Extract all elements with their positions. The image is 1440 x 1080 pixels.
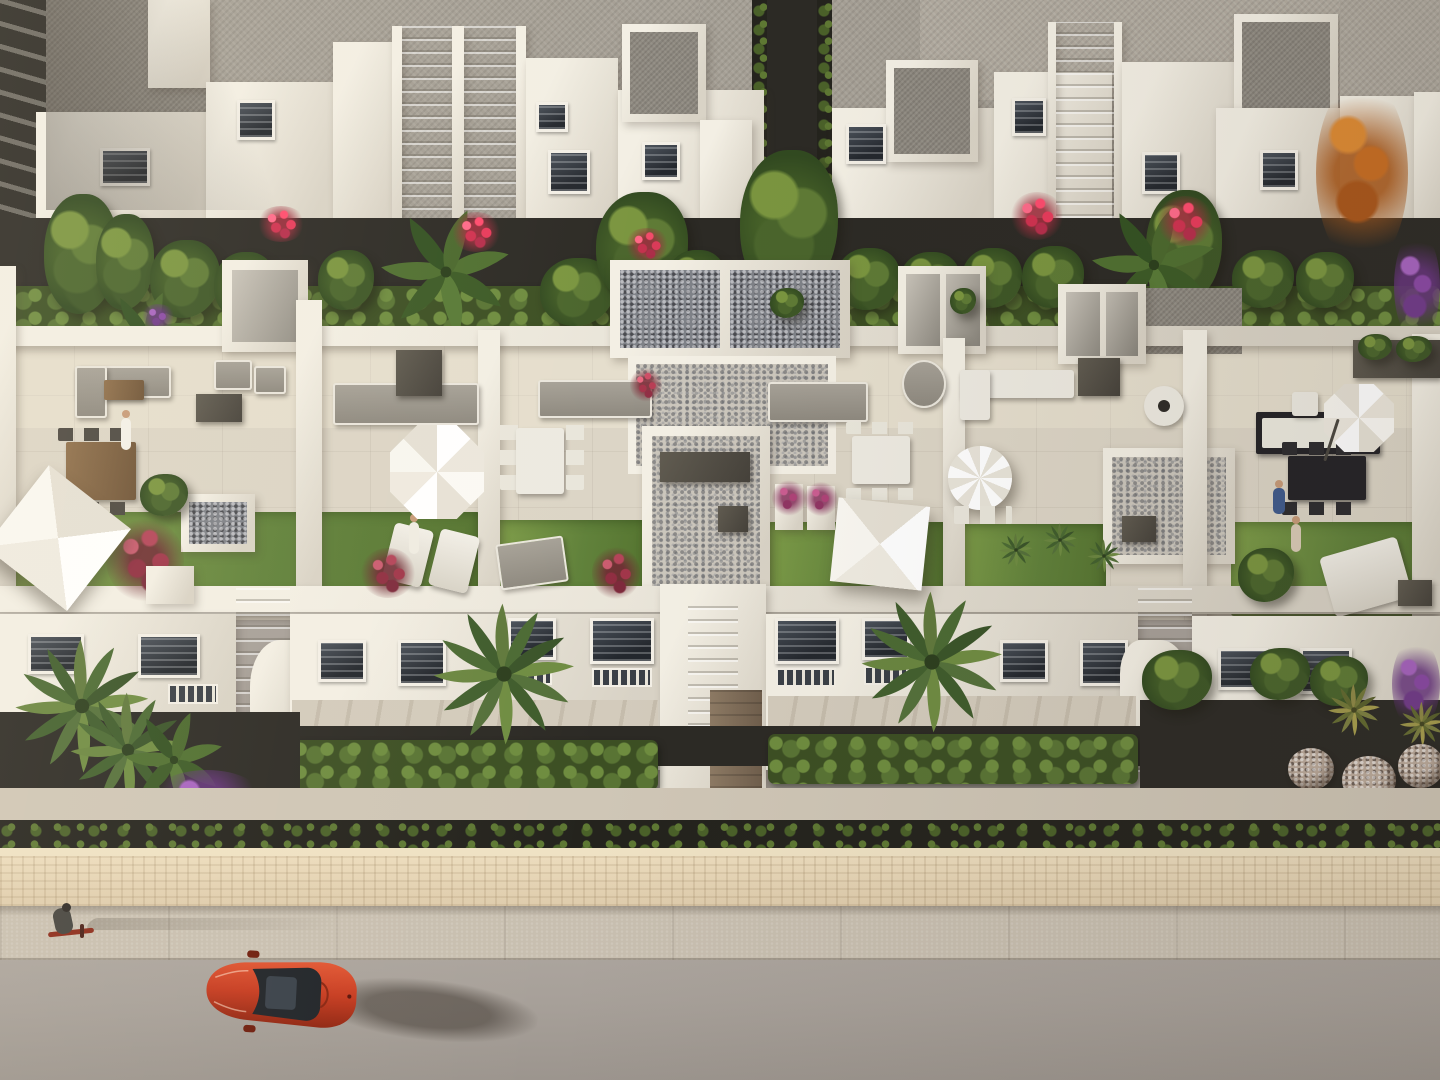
ornamental-rock-ball — [1398, 744, 1440, 788]
red-car — [198, 942, 367, 1044]
person-body — [121, 418, 131, 450]
dining-chair-row — [846, 488, 918, 500]
lounge-sofa — [75, 366, 107, 418]
cyclist-shadow — [85, 918, 342, 930]
person-head — [1292, 516, 1300, 524]
pink-flowering-shrub — [450, 212, 502, 252]
person-body — [409, 522, 419, 554]
cyclist — [36, 898, 108, 952]
window-louvered — [590, 618, 654, 664]
dining-chair-row — [846, 422, 918, 434]
rooftop-box-gravel — [1242, 22, 1330, 108]
pink-flowering-shrub — [1156, 196, 1214, 246]
table-bowl — [1158, 400, 1170, 412]
dining-chair-row — [566, 420, 584, 490]
pink-flowering-shrub — [256, 206, 306, 242]
pink-flowering-shrub — [1010, 192, 1064, 240]
ornamental-grass — [1322, 682, 1386, 738]
front-garden-hedge — [768, 734, 1138, 784]
storage-unit — [660, 452, 750, 482]
person-standing — [118, 410, 134, 456]
person-head — [122, 410, 130, 418]
window-louvered — [318, 640, 366, 682]
blue-flowers — [772, 480, 806, 516]
person-seated — [1270, 480, 1288, 516]
pebble-top-box-gravel — [189, 502, 247, 544]
roof-shade — [46, 0, 346, 210]
terrace-divider-wall — [1183, 330, 1207, 616]
bulkhead-interior — [232, 270, 298, 342]
potted-palm — [1086, 538, 1122, 574]
wicker-chair — [902, 360, 946, 408]
window — [1142, 152, 1180, 194]
coffee-table — [104, 380, 144, 400]
window — [536, 102, 568, 132]
aerial-render-scene — [0, 0, 1440, 1080]
person-body — [1291, 524, 1301, 552]
octagonal-parasol — [1324, 384, 1394, 452]
bulkhead-interior — [1066, 292, 1100, 356]
rider-head — [62, 903, 71, 912]
dining-chair-row — [1282, 502, 1362, 515]
rooftop-box-gravel — [630, 32, 698, 114]
lounger-pair — [495, 535, 569, 590]
coffee-table-dark — [1078, 358, 1120, 396]
tree-planter — [146, 566, 194, 604]
pouf-cube — [1292, 392, 1318, 416]
square-parasol — [830, 497, 930, 590]
window — [1260, 150, 1298, 190]
ornamental-grass — [1396, 700, 1440, 748]
low-table — [1398, 580, 1432, 606]
storage-cube — [396, 350, 442, 396]
wall-shadow-on-sidewalk — [0, 906, 1440, 916]
orange-autumn-tree — [1316, 78, 1408, 268]
rooftop-box-gravel — [894, 68, 970, 154]
dining-table-white — [516, 428, 564, 494]
bulkhead-interior — [906, 274, 940, 346]
red-shrub — [592, 546, 640, 600]
pink-flowering-shrub — [624, 228, 670, 262]
lounge-sofa — [768, 382, 868, 422]
sideboard — [196, 394, 242, 422]
storage-cube — [718, 506, 748, 532]
octagonal-parasol — [390, 425, 484, 519]
window — [642, 142, 680, 180]
window-vent — [592, 668, 652, 687]
window — [1012, 98, 1046, 136]
red-shrub — [360, 548, 416, 598]
person-standing — [406, 514, 422, 560]
terrace-divider-wall — [296, 300, 322, 614]
blue-flowers — [804, 482, 838, 516]
banana-plant — [348, 204, 544, 340]
window-vent — [776, 668, 836, 687]
lounge-sofa-white — [960, 370, 990, 420]
palm-tree — [428, 598, 580, 750]
storage-cube — [1122, 516, 1156, 542]
dining-table-white — [852, 436, 910, 484]
bicycle-handlebar — [80, 924, 84, 938]
bulkhead-cell — [620, 270, 720, 348]
potted-palm — [998, 532, 1034, 568]
potted-palm — [1042, 522, 1078, 558]
armchair — [214, 360, 252, 390]
window — [846, 124, 886, 164]
round-parasol — [948, 446, 1012, 510]
ornamental-rock-ball — [1288, 748, 1334, 790]
window-louvered — [775, 618, 839, 664]
person-body — [1273, 488, 1285, 514]
window — [548, 150, 590, 194]
bulkhead-interior — [1106, 292, 1138, 356]
palm-tree — [856, 586, 1008, 738]
armchair — [254, 366, 286, 394]
person-head — [1275, 480, 1283, 488]
person-on-lawn — [1288, 516, 1304, 556]
bistro-chairs — [954, 506, 1012, 524]
dining-table-black — [1288, 456, 1366, 500]
red-flower-pot — [630, 368, 662, 402]
